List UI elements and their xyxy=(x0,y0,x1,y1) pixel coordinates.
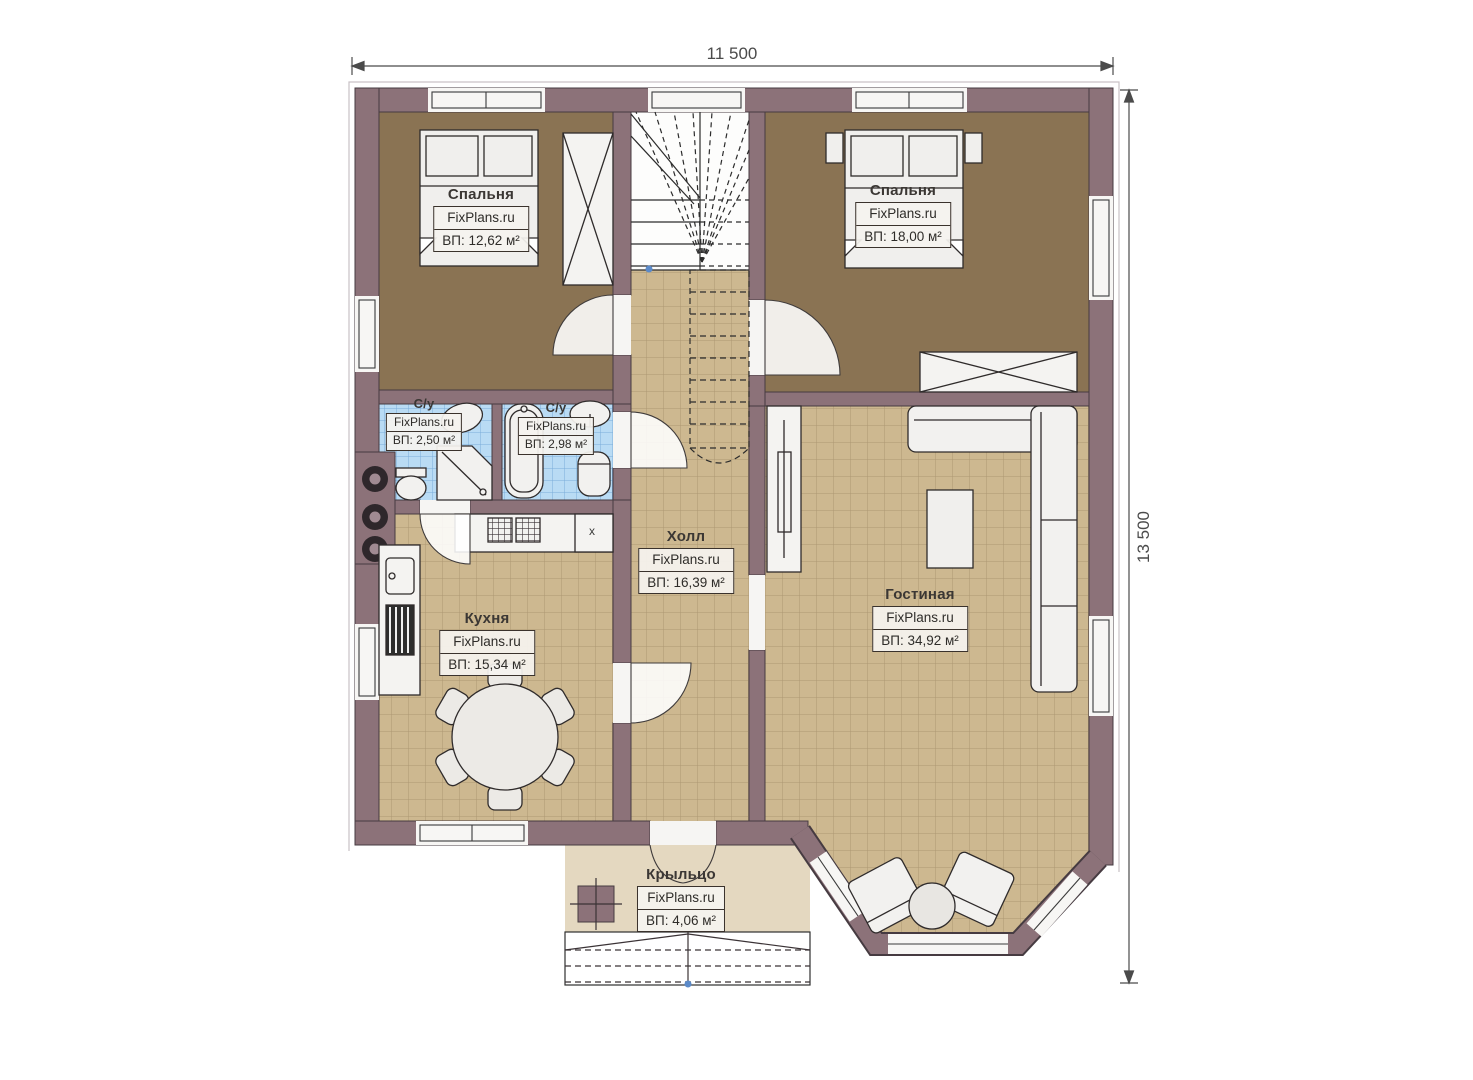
room-info-box: FixPlans.ru ВП: 2,98 м² xyxy=(518,417,594,455)
room-label-hall: Холл FixPlans.ru ВП: 16,39 м² xyxy=(638,528,734,594)
room-name: Спальня xyxy=(855,182,951,199)
room-area: ВП: 34,92 м² xyxy=(873,629,967,652)
room-label-bath-2: С/у FixPlans.ru ВП: 2,98 м² xyxy=(518,400,594,455)
room-name: Кухня xyxy=(439,610,535,627)
room-name: Крыльцо xyxy=(637,866,725,883)
room-label-bedroom-1: Спальня FixPlans.ru ВП: 12,62 м² xyxy=(433,186,529,252)
room-name: Гостиная xyxy=(872,586,968,603)
room-info-box: FixPlans.ru ВП: 12,62 м² xyxy=(433,206,529,252)
watermark-text: FixPlans.ru xyxy=(387,414,461,431)
room-area: ВП: 18,00 м² xyxy=(856,225,950,248)
room-info-box: FixPlans.ru ВП: 2,50 м² xyxy=(386,413,462,451)
room-label-bath-1: С/у FixPlans.ru ВП: 2,50 м² xyxy=(386,396,462,451)
watermark-text: FixPlans.ru xyxy=(638,887,724,909)
tv-stand xyxy=(767,406,801,572)
side-table xyxy=(909,883,955,929)
coffee-table xyxy=(927,490,973,568)
dimension-right-label: 13 500 xyxy=(1134,511,1154,563)
room-label-bedroom-2: Спальня FixPlans.ru ВП: 18,00 м² xyxy=(855,182,951,248)
room-label-porch: Крыльцо FixPlans.ru ВП: 4,06 м² xyxy=(637,866,725,932)
room-info-box: FixPlans.ru ВП: 16,39 м² xyxy=(638,548,734,594)
watermark-text: FixPlans.ru xyxy=(856,203,950,225)
room-name: Холл xyxy=(638,528,734,545)
watermark-text: FixPlans.ru xyxy=(440,631,534,653)
room-name: Спальня xyxy=(433,186,529,203)
cabinet-x-mark: x xyxy=(589,524,595,538)
room-info-box: FixPlans.ru ВП: 4,06 м² xyxy=(637,886,725,932)
room-info-box: FixPlans.ru ВП: 34,92 м² xyxy=(872,606,968,652)
room-area: ВП: 12,62 м² xyxy=(434,229,528,252)
wardrobe-2 xyxy=(920,352,1077,392)
floor-plan-canvas: 11 500 13 500 Спальня FixPlans.ru ВП: 12… xyxy=(0,0,1473,1080)
watermark-text: FixPlans.ru xyxy=(639,549,733,571)
dimension-top-label: 11 500 xyxy=(707,44,758,64)
room-area: ВП: 4,06 м² xyxy=(638,909,724,932)
floor-plan-drawing xyxy=(0,0,1473,1080)
watermark-text: FixPlans.ru xyxy=(519,418,593,435)
room-name: С/у xyxy=(386,396,462,411)
room-area: ВП: 15,34 м² xyxy=(440,653,534,676)
room-name: С/у xyxy=(518,400,594,415)
room-area: ВП: 2,50 м² xyxy=(387,431,461,449)
room-info-box: FixPlans.ru ВП: 18,00 м² xyxy=(855,202,951,248)
room-area: ВП: 16,39 м² xyxy=(639,571,733,594)
room-area: ВП: 2,98 м² xyxy=(519,435,593,453)
watermark-text: FixPlans.ru xyxy=(434,207,528,229)
room-info-box: FixPlans.ru ВП: 15,34 м² xyxy=(439,630,535,676)
wardrobe-1 xyxy=(563,133,613,285)
watermark-text: FixPlans.ru xyxy=(873,607,967,629)
room-label-kitchen: Кухня FixPlans.ru ВП: 15,34 м² xyxy=(439,610,535,676)
room-label-living: Гостиная FixPlans.ru ВП: 34,92 м² xyxy=(872,586,968,652)
